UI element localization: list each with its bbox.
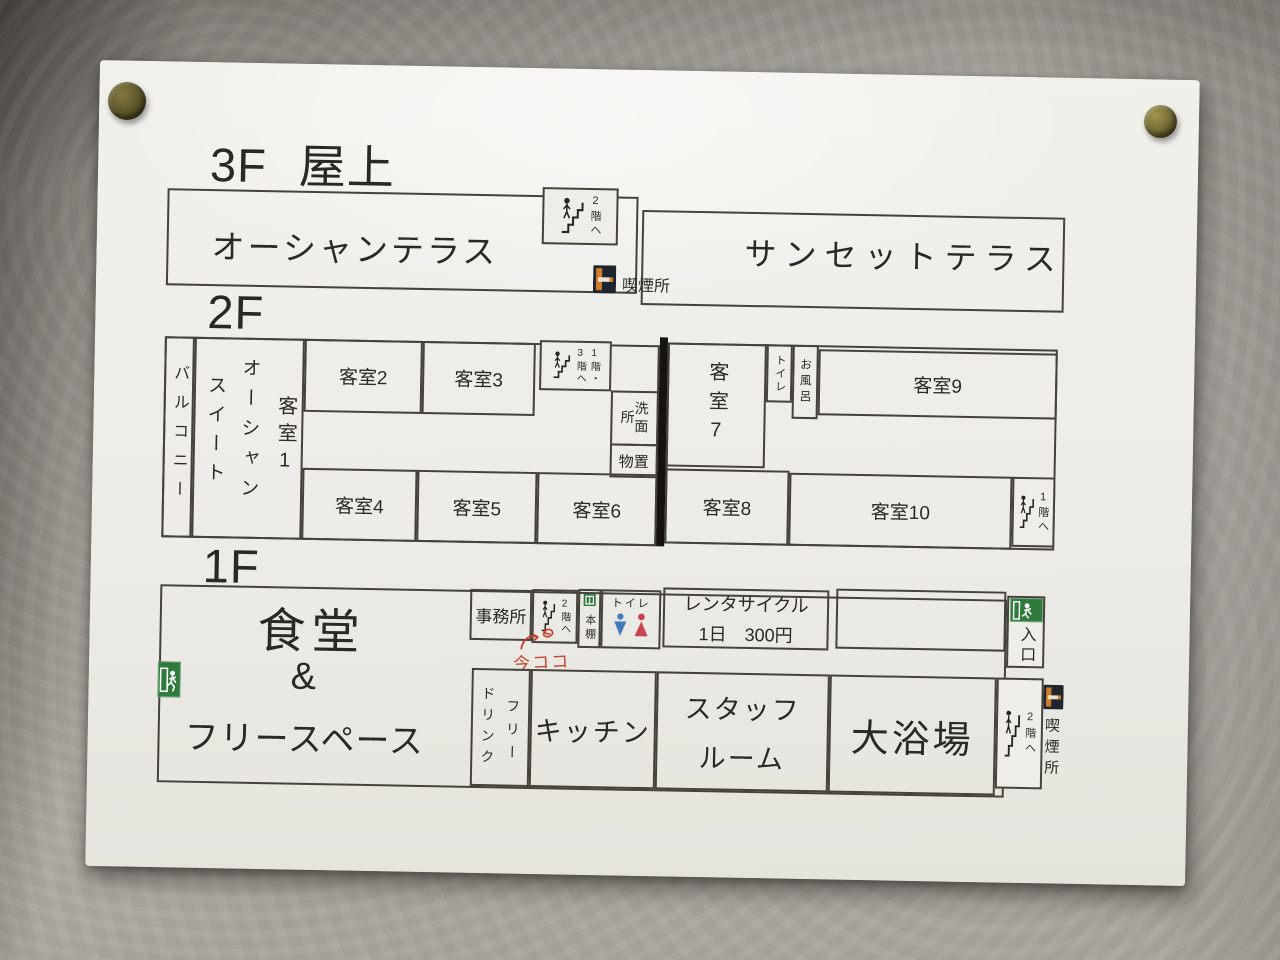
stairs-icon: [1003, 700, 1021, 767]
floor-map-sheet: 3F 屋上 オーシャンテラス サンセットテラス 2階へ 喫煙所 2F バルコニー…: [85, 60, 1200, 886]
guest-room-2: 客室2: [304, 339, 423, 414]
room5-label: 客室5: [452, 493, 501, 521]
sunset-terrace-label: サンセットテラス: [744, 229, 1064, 281]
ocean-terrace-label: オーシャンテラス: [211, 220, 499, 273]
washroom-2f: 洗面所: [610, 390, 659, 446]
bookshelf-1f: 本棚: [577, 589, 601, 648]
office-label: 事務所: [475, 602, 526, 628]
male-icon: [612, 612, 627, 638]
toilet-pictograms: [612, 612, 649, 639]
bath-2f-label: お風呂: [799, 358, 812, 406]
stairs-icon: [560, 191, 585, 240]
balcony-label: バルコニー: [169, 364, 188, 509]
guest-room-7: 客室7: [666, 342, 767, 468]
drink-label: ドリンク: [480, 686, 496, 770]
room8-label: 客室8: [702, 493, 751, 521]
free-label: フリー: [505, 699, 520, 768]
smoking-label-1f: 喫煙所: [1043, 717, 1059, 780]
guest-room-3: 客室3: [422, 341, 536, 416]
room6-label: 客室6: [572, 495, 621, 523]
smoking-icon: [593, 265, 617, 293]
stairs-box-2f-right: 1階へ: [1011, 477, 1055, 548]
photo-of-floor-map: { "floor3": { "floor_label": "3F", "area…: [0, 0, 1280, 960]
rental-price: 1日 300円: [698, 620, 793, 648]
push-pin-left: [108, 82, 146, 120]
bookshelf-label: 本棚: [583, 614, 595, 642]
ampersand-label: &: [290, 656, 316, 699]
bookshelf-icon: [583, 593, 596, 611]
smoking-label-3f: 喫煙所: [622, 272, 670, 297]
bath-2f: お風呂: [792, 345, 819, 419]
staff-room-label-1: スタッフ: [684, 687, 801, 728]
kitchen-1f: キッチン: [529, 669, 657, 789]
toilet-2f-label: トイレ: [774, 354, 786, 393]
floor2-title: 2F: [207, 284, 265, 340]
exit-sign-icon: [157, 661, 181, 697]
storage-label: 物置: [619, 450, 649, 472]
stairs-note-2f-right: 1階へ: [1036, 491, 1048, 534]
entrance-exit-icon: [1009, 598, 1042, 623]
rental-title: レンタサイクル: [683, 590, 809, 618]
stairs-icon: [1018, 483, 1035, 540]
smoking-icon: [1043, 683, 1063, 710]
room2-label: 客室2: [339, 362, 388, 390]
floor3-title: 3F 屋上: [210, 126, 396, 198]
large-bath-label: 大浴場: [850, 706, 974, 763]
guest-room-6: 客室6: [536, 472, 657, 546]
dining-label: 食堂: [257, 591, 366, 663]
stairs-note-2f-1f: 1階・: [588, 348, 599, 385]
staff-room-1f: スタッフ ルーム: [655, 671, 830, 792]
entrance-1f: 入口: [1006, 596, 1045, 669]
rental-cycle-1f: レンタサイクル 1日 300円: [662, 587, 829, 650]
stairs-note-1f-left: 2階へ: [559, 598, 570, 635]
floor2-label: 2F: [207, 284, 265, 340]
room10-label: 客室10: [871, 497, 931, 525]
room7-label: 客室7: [705, 361, 727, 450]
staff-room-label-2: ルーム: [698, 736, 785, 777]
suite-room-number: 客室1: [274, 395, 296, 478]
toilet-1f: トイレ: [600, 589, 661, 649]
guest-room-4: 客室4: [301, 468, 417, 542]
room3-label: 客室3: [454, 365, 503, 393]
guest-room-5: 客室5: [416, 470, 537, 544]
room4-label: 客室4: [335, 491, 384, 519]
push-pin-right: [1144, 105, 1177, 138]
stairs-box-2f-mid: 3階へ 1階・: [539, 340, 612, 391]
floor3-label: 3F: [210, 137, 268, 193]
guest-room-8: 客室8: [664, 468, 789, 545]
entrance-label: 入口: [1017, 626, 1034, 666]
suite-label-col1: オーシャン: [238, 358, 260, 508]
toilet-1f-label: トイレ: [611, 594, 650, 611]
washroom-label: 洗面所: [620, 393, 649, 445]
red-scribble: [541, 626, 554, 644]
ocean-suite-room1: スイート オーシャン 客室1: [191, 337, 305, 540]
free-space-label: フリースペース: [184, 710, 424, 763]
stairs-note-1f-right: 2階へ: [1023, 711, 1035, 757]
stairs-note-3f: 2階へ: [589, 195, 601, 238]
room9-label: 客室9: [913, 370, 962, 398]
floor-plan: 3F 屋上 オーシャンテラス サンセットテラス 2階へ 喫煙所 2F バルコニー…: [85, 60, 1200, 886]
stairs-icon: [552, 344, 571, 387]
stairs-note-2f-3f: 3階へ: [574, 347, 585, 384]
guest-room-9: 客室9: [818, 349, 1058, 419]
guest-room-10: 客室10: [788, 473, 1012, 550]
suite-label-col2: スイート: [204, 375, 225, 491]
balcony-2f: バルコニー: [161, 336, 195, 538]
unlabeled-room-1f: [835, 589, 1006, 652]
free-drink-1f: ドリンク フリー: [470, 668, 531, 787]
kitchen-label: キッチン: [534, 709, 651, 750]
large-bath-1f: 大浴場: [828, 674, 997, 795]
stairs-box-3f: 2階へ: [542, 187, 619, 245]
toilet-2f: トイレ: [766, 344, 793, 402]
floor3-area-label: 屋上: [298, 128, 395, 199]
female-icon: [632, 613, 649, 639]
stairs-box-1f-right: 2階へ: [995, 678, 1044, 790]
